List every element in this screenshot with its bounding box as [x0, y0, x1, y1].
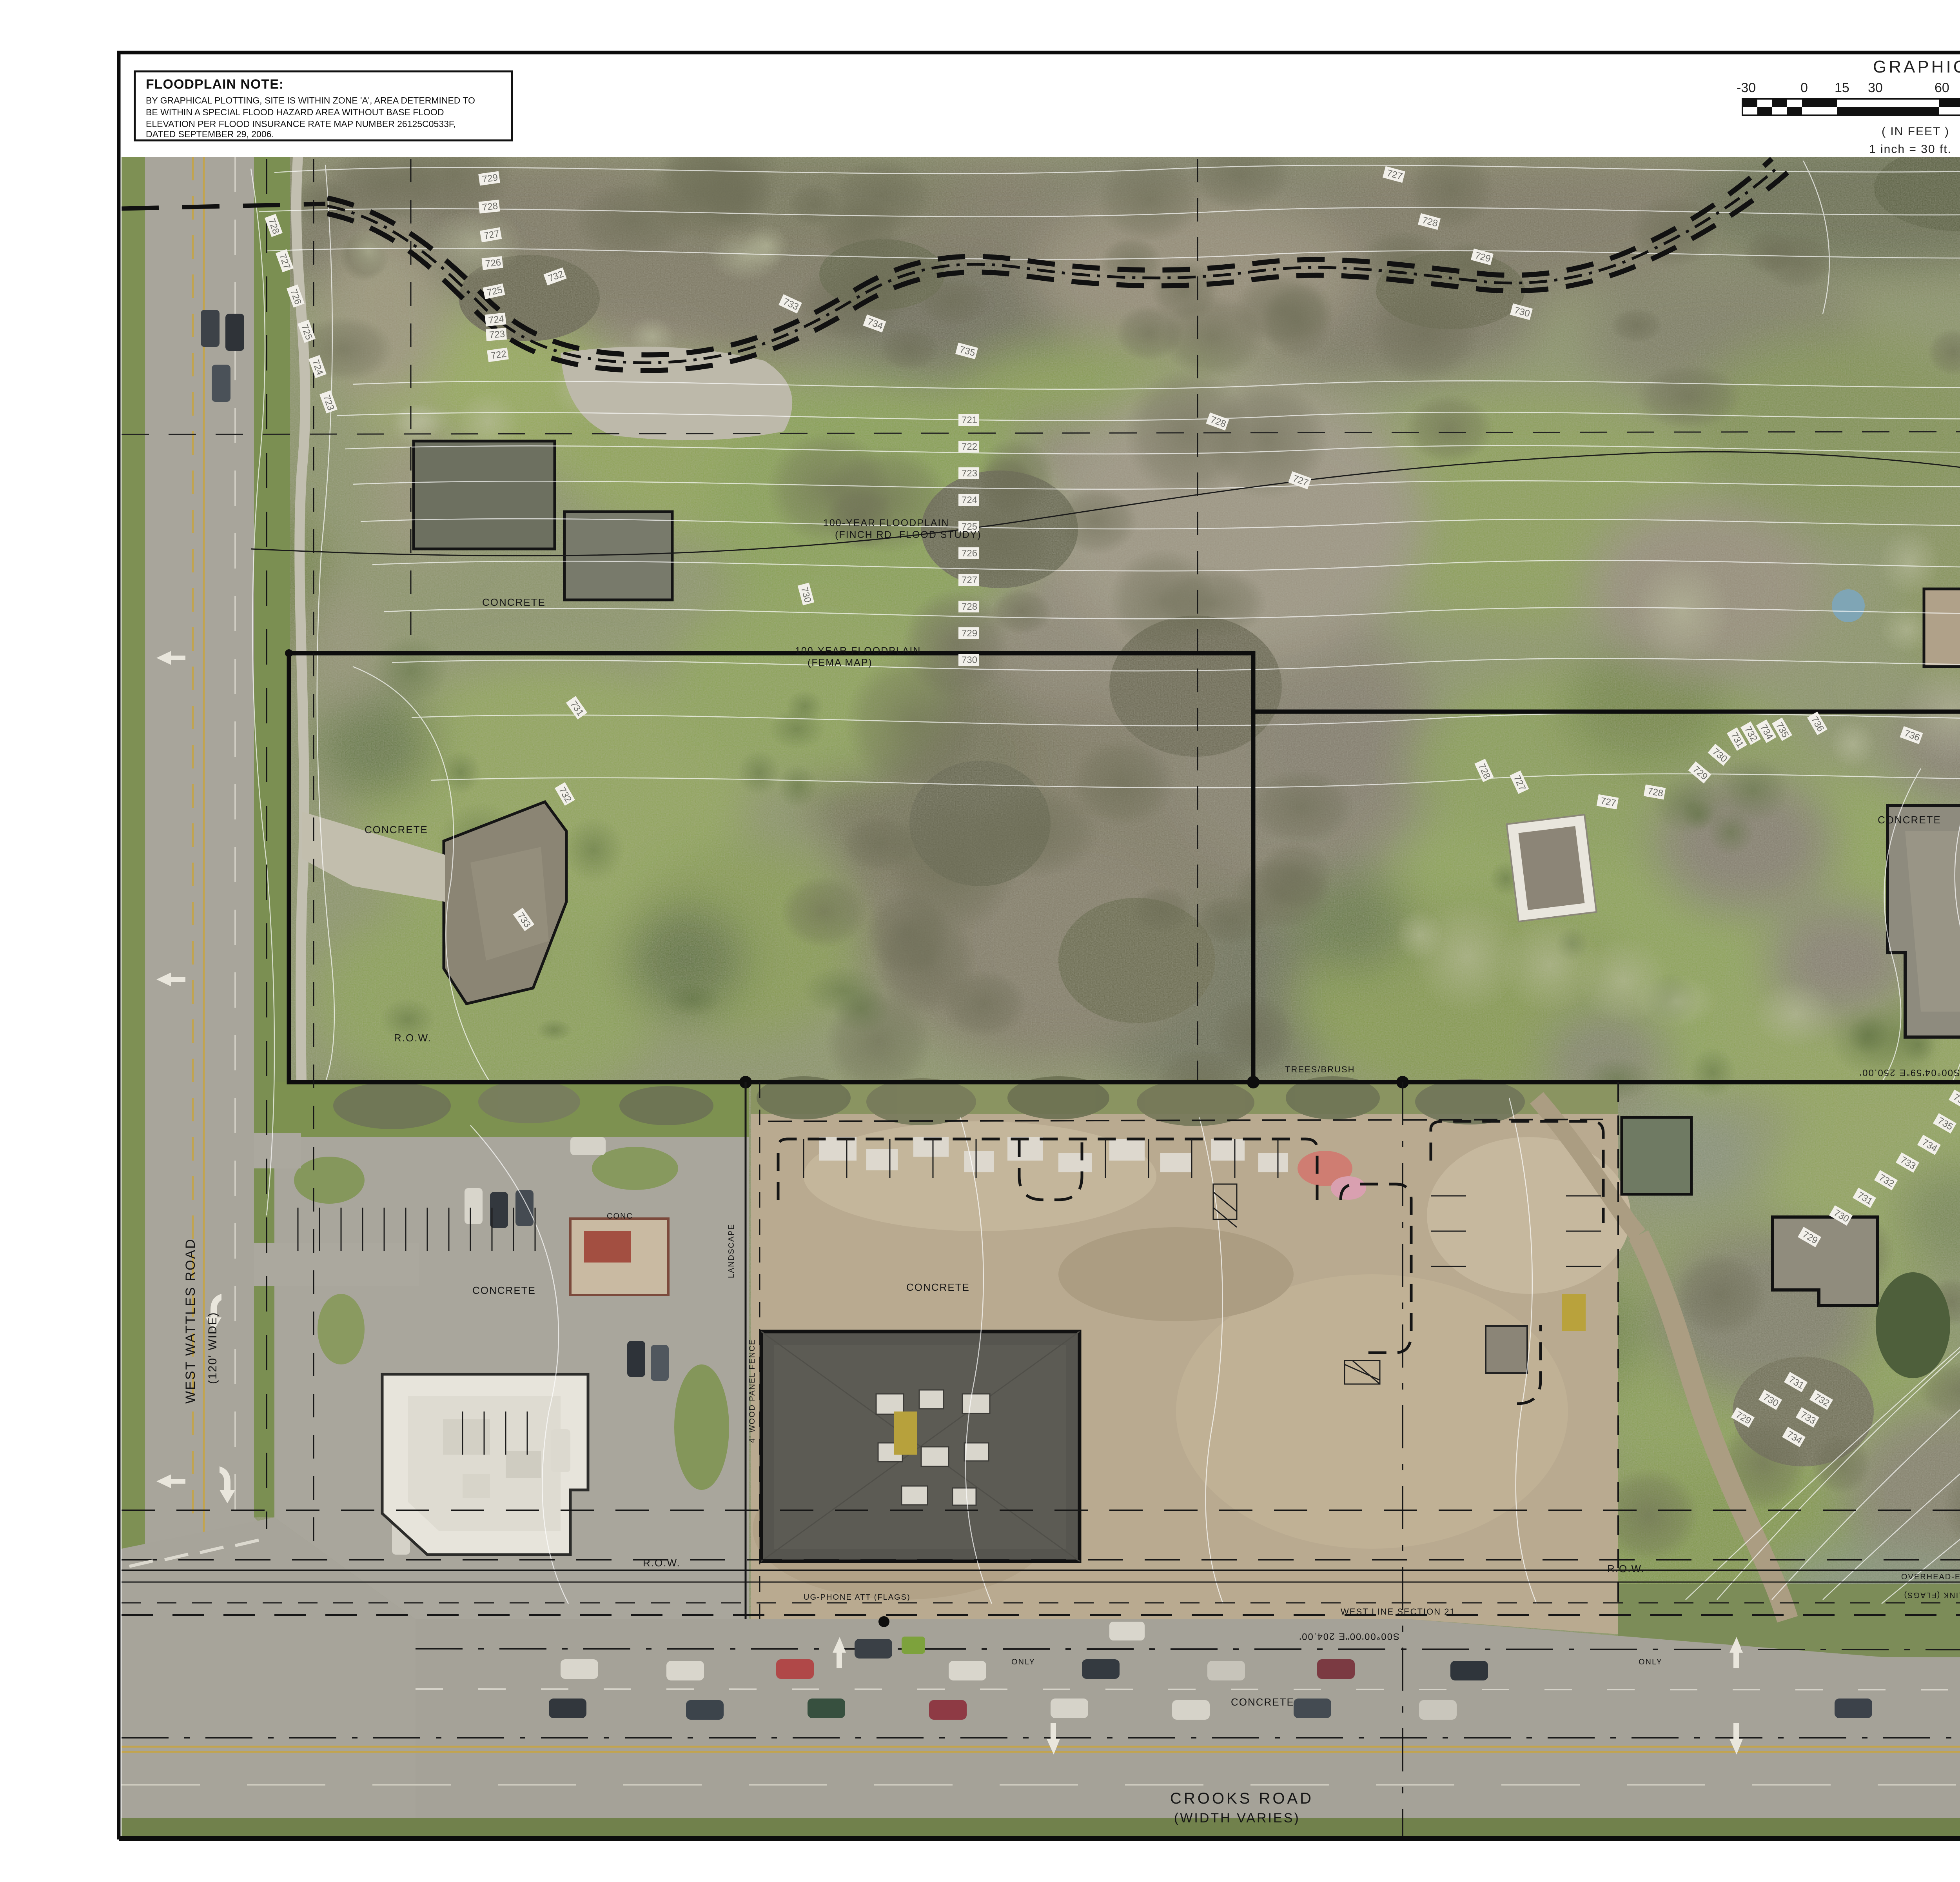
svg-text:FLOODPLAIN NOTE:: FLOODPLAIN NOTE: [146, 77, 284, 92]
svg-text:CONCRETE: CONCRETE [365, 824, 428, 836]
svg-text:60: 60 [1935, 80, 1949, 95]
svg-text:729: 729 [962, 628, 977, 639]
svg-text:WEST WATTLES ROAD: WEST WATTLES ROAD [183, 1238, 198, 1404]
svg-text:OVERHEAD-ELEC: OVERHEAD-ELEC [1901, 1573, 1960, 1581]
svg-text:(FINCH RD. FLOOD STUDY): (FINCH RD. FLOOD STUDY) [835, 529, 982, 540]
svg-text:(120' WIDE): (120' WIDE) [206, 1312, 219, 1384]
svg-text:WEST LINE SECTION 21: WEST LINE SECTION 21 [1341, 1607, 1455, 1617]
svg-text:DATED SEPTEMBER 29, 2006.: DATED SEPTEMBER 29, 2006. [146, 129, 274, 139]
svg-text:CONCRETE: CONCRETE [1231, 1696, 1294, 1708]
svg-text:R.O.W.: R.O.W. [1607, 1563, 1645, 1575]
svg-text:100-YEAR FLOODPLAIN: 100-YEAR FLOODPLAIN [795, 645, 921, 656]
svg-text:CONCRETE: CONCRETE [482, 596, 546, 608]
svg-text:30: 30 [1868, 80, 1883, 95]
svg-text:CONCRETE: CONCRETE [906, 1281, 970, 1293]
svg-text:722: 722 [490, 349, 507, 361]
svg-text:BY GRAPHICAL PLOTTING, SITE IS: BY GRAPHICAL PLOTTING, SITE IS WITHIN ZO… [146, 95, 475, 105]
svg-text:TREES/BRUSH: TREES/BRUSH [1285, 1065, 1355, 1074]
svg-text:15: 15 [1835, 80, 1849, 95]
svg-text:ELEVATION PER FLOOD INSURANCE: ELEVATION PER FLOOD INSURANCE RATE MAP N… [146, 119, 456, 129]
svg-text:CROOKS ROAD: CROOKS ROAD [1170, 1790, 1314, 1807]
svg-text:100-YEAR FLOODPLAIN: 100-YEAR FLOODPLAIN [823, 518, 949, 529]
svg-text:721: 721 [962, 415, 977, 425]
svg-text:R.O.W.: R.O.W. [643, 1557, 681, 1569]
svg-text:728: 728 [962, 601, 977, 612]
svg-text:(FEMA MAP): (FEMA MAP) [808, 657, 873, 668]
svg-text:726: 726 [485, 257, 502, 269]
svg-text:S00°04'59"E 250.00': S00°04'59"E 250.00' [1859, 1067, 1960, 1078]
svg-text:729: 729 [481, 172, 498, 185]
svg-text:0: 0 [1800, 80, 1808, 95]
svg-text:UG-PHONE ATT (FLAGS): UG-PHONE ATT (FLAGS) [804, 1593, 911, 1602]
svg-text:BE WITHIN A SPECIAL FLOOD HAZA: BE WITHIN A SPECIAL FLOOD HAZARD AREA WI… [146, 107, 444, 117]
svg-text:( IN FEET ): ( IN FEET ) [1882, 125, 1949, 138]
svg-text:R.O.W.: R.O.W. [394, 1032, 432, 1044]
svg-text:4' WOOD PANEL FENCE: 4' WOOD PANEL FENCE [748, 1339, 757, 1443]
svg-text:1 inch = 30 ft.: 1 inch = 30 ft. [1869, 143, 1952, 156]
svg-text:CONCRETE: CONCRETE [1878, 814, 1941, 826]
svg-text:723: 723 [489, 329, 505, 340]
svg-text:CONCRETE: CONCRETE [472, 1284, 536, 1296]
svg-text:728: 728 [482, 201, 499, 213]
svg-text:726: 726 [962, 548, 977, 559]
svg-text:GRAPHIC SCALE: GRAPHIC SCALE [1873, 57, 1960, 76]
svg-text:(WIDTH VARIES): (WIDTH VARIES) [1174, 1811, 1300, 1826]
svg-text:722: 722 [962, 441, 977, 452]
svg-text:-30: -30 [1737, 80, 1756, 95]
svg-text:723: 723 [962, 468, 977, 479]
svg-text:724: 724 [488, 314, 505, 326]
svg-text:724: 724 [962, 495, 977, 505]
svg-text:CONC: CONC [607, 1212, 633, 1221]
svg-text:ONLY: ONLY [1639, 1658, 1662, 1666]
svg-text:UG-PHONE CENTURYLINK (FLAGS): UG-PHONE CENTURYLINK (FLAGS) [1903, 1591, 1960, 1599]
svg-text:LANDSCAPE: LANDSCAPE [727, 1224, 736, 1278]
svg-text:S00°00'00"E 204.00': S00°00'00"E 204.00' [1299, 1631, 1399, 1642]
svg-text:ONLY: ONLY [1011, 1658, 1035, 1666]
svg-text:727: 727 [962, 575, 977, 585]
svg-text:730: 730 [962, 655, 977, 665]
